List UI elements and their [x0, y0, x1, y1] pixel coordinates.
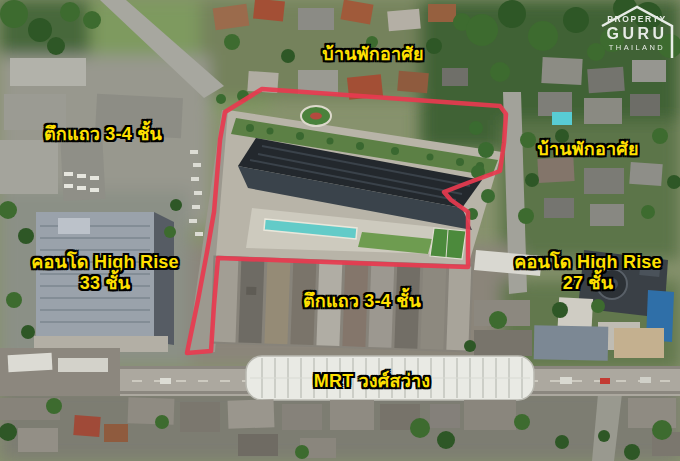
- label-rowhouse-left: ตึกแถว 3-4 ชั้น: [44, 124, 162, 145]
- label-condo-right: คอนโด High Rise 27 ชั้น: [514, 252, 662, 294]
- label-condo-left: คอนโด High Rise 33 ชั้น: [31, 252, 179, 294]
- label-condo-right-line2: 27 ชั้น: [514, 273, 662, 294]
- label-mrt-station: MRT วงศ์สว่าง: [314, 371, 431, 392]
- label-rowhouse-center: ตึกแถว 3-4 ชั้น: [303, 291, 421, 312]
- elevated-track-left: [0, 348, 120, 396]
- label-condo-left-line1: คอนโด High Rise: [31, 252, 179, 273]
- house-pool: [552, 112, 572, 125]
- label-residential-top: บ้านพักอาศัย: [322, 44, 423, 65]
- label-condo-right-line1: คอนโด High Rise: [514, 252, 662, 273]
- house-outline-icon: [598, 4, 676, 62]
- aerial-map: บ้านพักอาศัย ตึกแถว 3-4 ชั้น บ้านพักอาศั…: [0, 0, 680, 461]
- label-residential-right: บ้านพักอาศัย: [537, 139, 638, 160]
- label-condo-left-line2: 33 ชั้น: [31, 273, 179, 294]
- property-guru-watermark: PROPERTY GURU THAILAND: [598, 4, 676, 51]
